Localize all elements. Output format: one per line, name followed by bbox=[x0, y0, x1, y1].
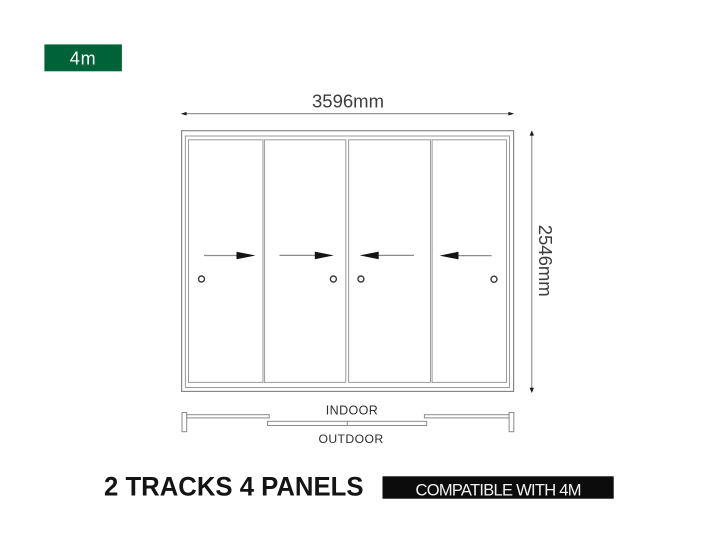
svg-text:COMPATIBLE WITH 4M: COMPATIBLE WITH 4M bbox=[416, 481, 582, 499]
svg-text:2 TRACKS 4 PANELS: 2 TRACKS 4 PANELS bbox=[104, 472, 364, 502]
svg-text:4m: 4m bbox=[70, 48, 97, 68]
svg-text:3596mm: 3596mm bbox=[312, 91, 384, 112]
svg-text:INDOOR: INDOOR bbox=[326, 404, 378, 418]
svg-text:OUTDOOR: OUTDOOR bbox=[318, 432, 383, 446]
svg-text:2546mm: 2546mm bbox=[535, 225, 556, 297]
